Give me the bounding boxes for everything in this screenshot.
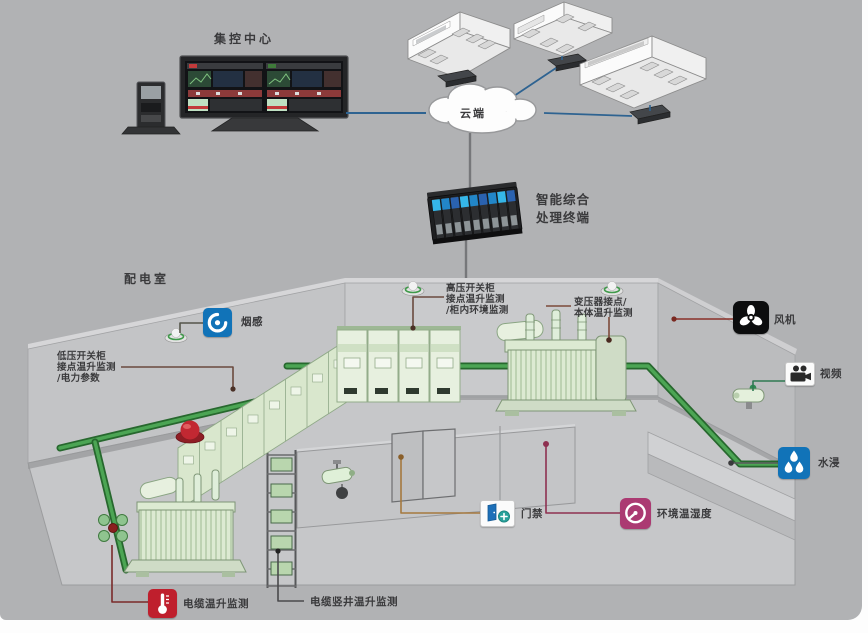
distribution-room bbox=[28, 278, 797, 602]
callout-dot-fan bbox=[671, 316, 676, 321]
env-temp-humidity-icon bbox=[620, 498, 651, 529]
terminal-label: 智能综合 处理终端 bbox=[536, 191, 590, 227]
room-title: 配电室 bbox=[124, 270, 169, 287]
fan-icon bbox=[733, 301, 769, 334]
hv-label-line3: /柜内环境监测 bbox=[446, 305, 509, 316]
cable-label: 电缆温升监测 bbox=[183, 596, 249, 611]
shaft-label: 电缆竖井温升监测 bbox=[310, 594, 398, 609]
cable-ladder bbox=[267, 450, 296, 588]
door-access-icon bbox=[480, 500, 515, 527]
callout-dot-hv bbox=[410, 325, 415, 330]
kiosk-terminal bbox=[122, 82, 180, 134]
door-label: 门禁 bbox=[521, 506, 543, 521]
video-icon bbox=[785, 362, 815, 386]
hv-switchgear bbox=[337, 326, 461, 402]
lv-label-line3: /电力参数 bbox=[57, 373, 116, 384]
hv-label-line1: 高压开关柜 bbox=[446, 283, 509, 294]
lv-label-line2: 接点温升监测 bbox=[57, 362, 116, 373]
callout-dot-env bbox=[543, 441, 549, 447]
callout-dot-door bbox=[398, 454, 404, 460]
callout-dot-shaft bbox=[275, 548, 280, 553]
video-label: 视频 bbox=[820, 366, 842, 381]
terminal-rack bbox=[427, 182, 523, 245]
smoke-sensor-icon bbox=[203, 308, 232, 337]
diagram-page: 集控中心 云端 智能综合 处理终端 配电室 烟感 高压开关柜 接点温升监测 /柜… bbox=[0, 0, 868, 633]
fan-label: 风机 bbox=[774, 312, 796, 327]
building-b bbox=[514, 2, 612, 56]
link-c-cloud bbox=[544, 113, 632, 116]
control-center-label: 集控中心 bbox=[214, 30, 274, 47]
water-icon bbox=[778, 447, 810, 479]
cable-temp-icon bbox=[148, 589, 177, 618]
lv-label: 低压开关柜 接点温升监测 /电力参数 bbox=[57, 351, 116, 384]
terminal-label-line2: 处理终端 bbox=[536, 209, 590, 227]
transformer-label-line2: 本体温升监测 bbox=[574, 308, 633, 319]
control-center-video-wall bbox=[180, 56, 348, 131]
building-c bbox=[580, 36, 706, 108]
callout-dot-lv bbox=[230, 386, 235, 391]
callout-dot-water bbox=[728, 460, 734, 466]
system-architecture-diagram: 集控中心 云端 智能综合 处理终端 配电室 烟感 高压开关柜 接点温升监测 /柜… bbox=[0, 0, 862, 620]
cloud-label: 云端 bbox=[460, 105, 486, 121]
terminal-label-line1: 智能综合 bbox=[536, 191, 590, 209]
link-b-cloud bbox=[514, 68, 556, 96]
transformer-label: 变压器接点/ 本体温升监测 bbox=[574, 297, 633, 319]
hv-label-line2: 接点温升监测 bbox=[446, 294, 509, 305]
water-label: 水浸 bbox=[818, 455, 840, 470]
callout-dot-transformer bbox=[606, 337, 612, 343]
building-a bbox=[408, 12, 510, 78]
transformer-label-line1: 变压器接点/ bbox=[574, 297, 633, 308]
hv-label: 高压开关柜 接点温升监测 /柜内环境监测 bbox=[446, 283, 509, 316]
env-label: 环境温湿度 bbox=[657, 506, 712, 521]
smoke-label: 烟感 bbox=[241, 314, 263, 329]
lv-label-line1: 低压开关柜 bbox=[57, 351, 116, 362]
